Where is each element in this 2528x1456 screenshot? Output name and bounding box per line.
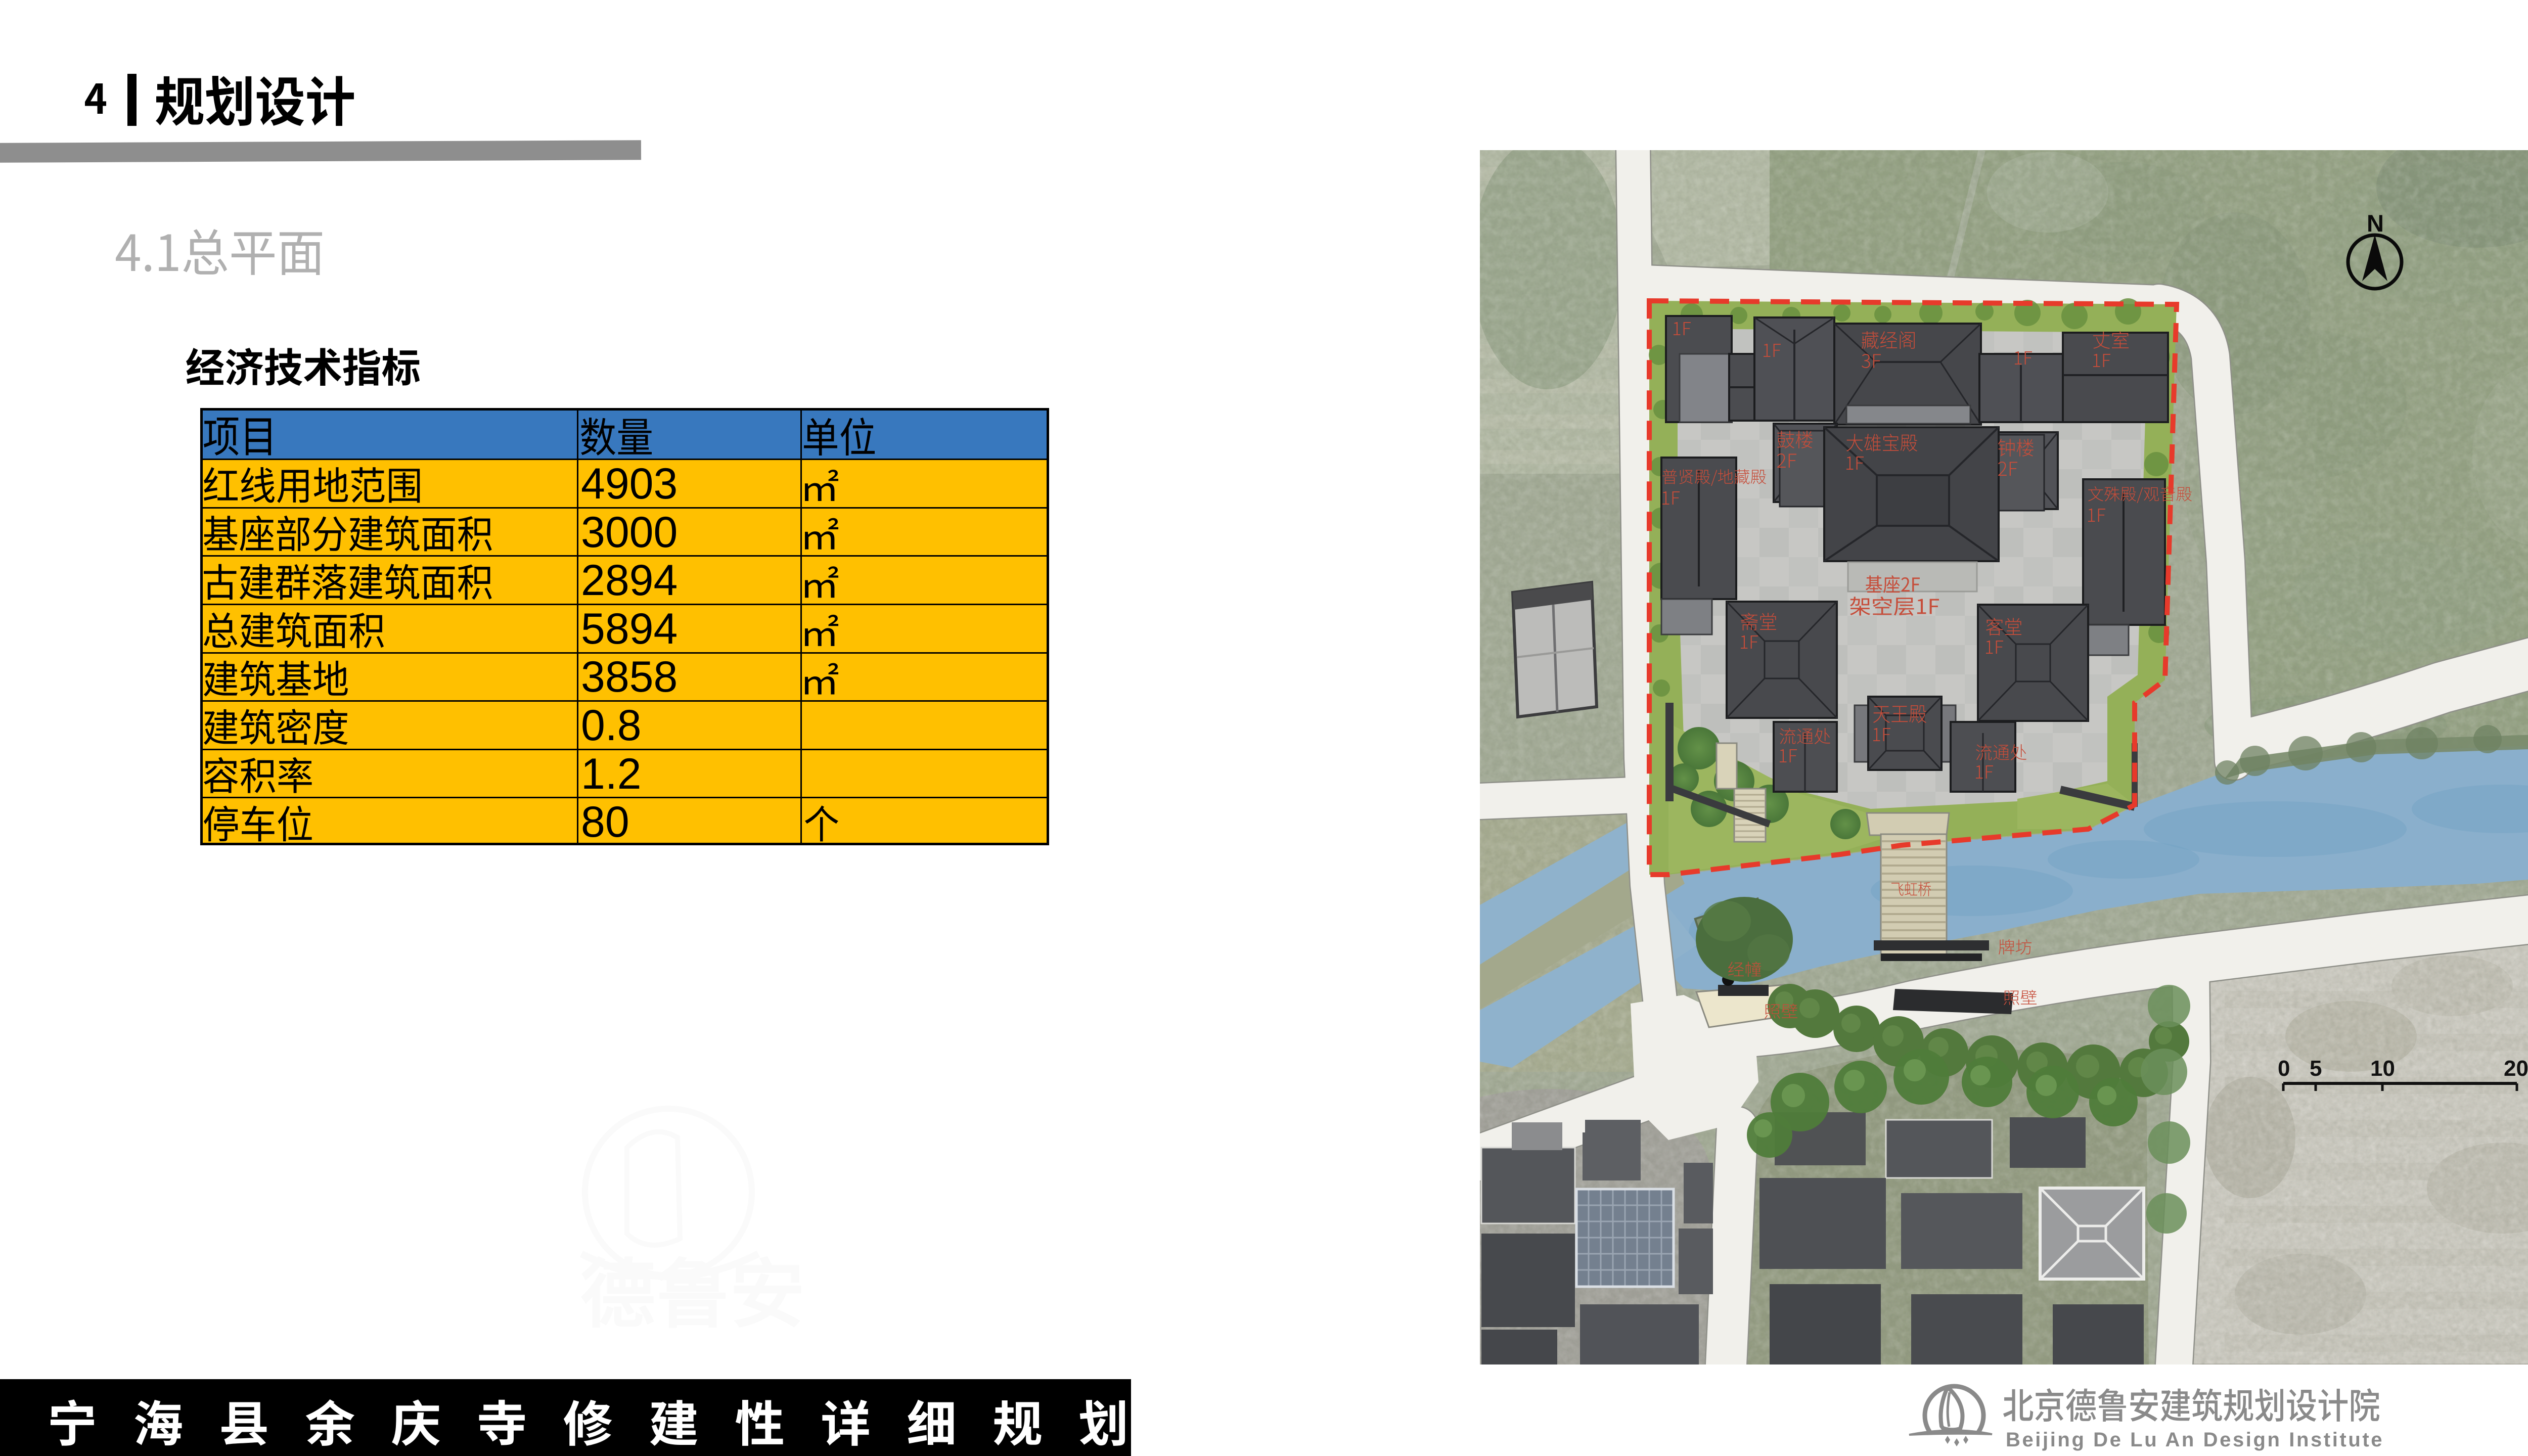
svg-text:1.2: 1.2	[581, 750, 642, 798]
svg-text:3858: 3858	[581, 653, 678, 701]
svg-text:3000: 3000	[581, 508, 678, 557]
svg-text:0.8: 0.8	[581, 701, 642, 750]
svg-text:2894: 2894	[581, 556, 678, 605]
svg-text:5894: 5894	[581, 605, 678, 653]
svg-text:4903: 4903	[581, 460, 678, 508]
svg-text:80: 80	[581, 798, 629, 846]
svg-text:Beijing De Lu An Design Instit: Beijing De Lu An Design Institute	[2006, 1429, 2383, 1451]
